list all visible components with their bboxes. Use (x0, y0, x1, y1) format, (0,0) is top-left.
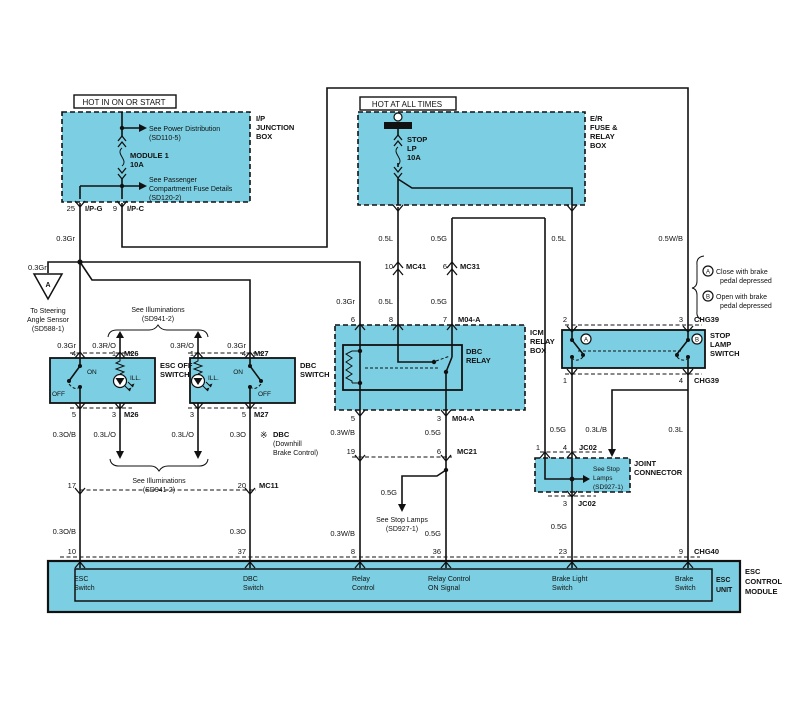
connector-name: CHG39 (694, 315, 719, 324)
module-signal-label: Switch (675, 585, 696, 592)
connector-name: CHG39 (694, 376, 719, 385)
fuse-name: STOP (407, 135, 427, 144)
connector-name: M27 (254, 410, 269, 419)
reference-label: (SD588-1) (32, 326, 64, 333)
unit-name: ESC (716, 577, 730, 584)
reference-label: See Passenger (149, 177, 198, 184)
connector-name: CHG40 (694, 547, 719, 556)
connector-name: M26 (124, 410, 139, 419)
wire-label: 0.5G (425, 428, 441, 437)
module-signal-label: Switch (243, 585, 264, 592)
reference-label: See Stop (593, 466, 620, 473)
pin-number: 5 (351, 414, 355, 423)
module-signal-label: Brake (675, 576, 693, 583)
pin-number: 10 (68, 547, 76, 556)
wire-label: 0.3W/B (330, 529, 355, 538)
pin-number: 7 (443, 315, 447, 324)
reference-label: (SD110-5) (149, 135, 181, 142)
pin-number: 19 (347, 447, 355, 456)
wire-label: 0.5G (551, 522, 567, 531)
connector-name: I/P-C (127, 204, 145, 213)
reference-label: (SD927-1) (593, 484, 623, 491)
power-tag-label: HOT AT ALL TIMES (372, 100, 442, 109)
module-signal-label: Control (352, 585, 375, 592)
component-name: SWITCH (160, 370, 190, 379)
component-name: LAMP (710, 340, 731, 349)
wire-label: 0.5G (431, 297, 447, 306)
wire-label: 0.3Gr (56, 234, 75, 243)
switch-position-label: OFF (52, 391, 65, 398)
arrow-up-icon (194, 331, 202, 338)
wire-label: 0.3L/O (171, 430, 194, 439)
wire (80, 262, 360, 325)
wiring-diagram: HOT IN ON OR START HOT AT ALL TIMES I/P … (0, 0, 810, 701)
pin-number: 37 (238, 547, 246, 556)
reference-label: (SD941-2) (142, 316, 174, 323)
module-signal-label: Brake Light (552, 576, 587, 583)
wiring-diagram-page: HOT IN ON OR START HOT AT ALL TIMES I/P … (0, 0, 810, 701)
module-signal-label: Switch (552, 585, 573, 592)
wire-label: 0.5L (378, 234, 393, 243)
module-name: MODULE (745, 587, 778, 596)
connector-name: M04-A (458, 315, 481, 324)
lamp-label: ILL. (208, 375, 219, 382)
pin-number: 3 (563, 499, 567, 508)
pin-number: 4 (563, 443, 567, 452)
lamp-label: ILL. (130, 375, 141, 382)
reference-label: (SD927-1) (386, 526, 418, 533)
box-name: FUSE & (590, 123, 618, 132)
wire (402, 470, 446, 504)
wire-label: 0.3Gr (28, 263, 47, 272)
fuse-rating: 10A (130, 160, 144, 169)
connector-name: MC31 (460, 262, 480, 271)
reference-label: Angle Sensor (27, 317, 70, 324)
pin-number: 2 (563, 315, 567, 324)
switch-position-label: ON (233, 369, 243, 376)
pin-number: 17 (68, 481, 76, 490)
connector-name: M04-A (452, 414, 475, 423)
connector-name: MC41 (406, 262, 426, 271)
wire-label: 0.3O (230, 527, 246, 536)
pin-number: 1 (563, 376, 567, 385)
switch-position-label: OFF (258, 391, 271, 398)
module-signal-label: ESC (74, 576, 88, 583)
box-name: BOX (530, 346, 546, 355)
pin-number: 8 (351, 547, 355, 556)
connector-name: MC21 (457, 447, 477, 456)
fusible-link-terminal-icon (394, 113, 402, 121)
connector-name: JC02 (579, 443, 597, 452)
component-name: STOP (710, 331, 730, 340)
unit-name: UNIT (716, 587, 733, 594)
note-label: Close with brake (716, 269, 768, 276)
box-name: JUNCTION (256, 123, 294, 132)
pin-number: 3 (112, 410, 116, 419)
pin-number: 6 (437, 447, 441, 456)
pin-number: 25 (67, 204, 75, 213)
fuse-name: MODULE 1 (130, 151, 169, 160)
brace-brake-note (692, 256, 704, 320)
fuse-rating: 10A (407, 153, 421, 162)
box-name: BOX (590, 141, 606, 150)
wire-label: 0.5G (550, 425, 566, 434)
brace-bottom (110, 459, 208, 471)
box-name: BOX (256, 132, 272, 141)
connector-name: M26 (124, 349, 139, 358)
reference-label: See Illuminations (132, 478, 186, 485)
wire-label: 0.3L (668, 425, 683, 434)
wire-label: 0.5G (381, 488, 397, 497)
connector-name: I/P-G (85, 204, 103, 213)
module-signal-label: Switch (74, 585, 95, 592)
module-signal-label: Relay (352, 576, 370, 583)
reference-label: See Stop Lamps (376, 517, 428, 524)
pin-number: 1 (536, 443, 540, 452)
module-name: ESC (745, 567, 761, 576)
arrow-down-icon (608, 449, 616, 457)
wire-label: 0.5G (431, 234, 447, 243)
component-name: ESC OFF (160, 361, 193, 370)
note-label: DBC (273, 430, 290, 439)
box-name: I/P (256, 114, 265, 123)
reference-mark-icon: ※ (260, 430, 268, 440)
arrow-down-icon (194, 451, 202, 459)
arrow-down-icon (398, 504, 406, 512)
pin-number: 23 (559, 547, 567, 556)
pin-number: 9 (113, 204, 117, 213)
pin-number: 5 (242, 410, 246, 419)
wire-label: 0.3O/B (53, 430, 76, 439)
reference-label: Compartment Fuse Details (149, 186, 233, 193)
box-name: CONNECTOR (634, 468, 683, 477)
wire-label: 0.3L/B (585, 425, 607, 434)
contact-b-letter: B (695, 338, 699, 344)
pin-number: 8 (389, 315, 393, 324)
wire-label: 0.5W/B (658, 234, 683, 243)
note-label: pedal depressed (720, 303, 772, 310)
note-label: Open with brake (716, 294, 767, 301)
switch-position-label: ON (87, 369, 97, 376)
wire-label: 0.3Gr (336, 297, 355, 306)
note-b-letter: B (706, 295, 710, 301)
component-name: DBC (466, 347, 483, 356)
box-name: E/R (590, 114, 603, 123)
component-name: DBC (300, 361, 317, 370)
wire-label: 0.5L (378, 297, 393, 306)
wire-label: 0.3O (230, 430, 246, 439)
wire (80, 403, 250, 568)
module-signal-label: DBC (243, 576, 258, 583)
reference-label: (SD120-2) (149, 195, 181, 202)
wire-label: 0.5G (425, 529, 441, 538)
pin-number: 5 (72, 410, 76, 419)
wire-label: 0.5L (551, 234, 566, 243)
box-name: JOINT (634, 459, 657, 468)
component-name: SWITCH (710, 349, 740, 358)
pin-number: 4 (679, 376, 683, 385)
box-name: ICM (530, 328, 544, 337)
wire-label: 0.3O/B (53, 527, 76, 536)
note-label: pedal depressed (720, 278, 772, 285)
connector-name: M27 (254, 349, 269, 358)
arrow-up-icon (116, 331, 124, 338)
component-name: RELAY (466, 356, 491, 365)
pin-number: 10 (385, 262, 393, 271)
arrow-down-icon (116, 451, 124, 459)
box-name: RELAY (530, 337, 555, 346)
note-label: Brake Control) (273, 450, 318, 457)
pin-number: 6 (443, 262, 447, 271)
component-name: SWITCH (300, 370, 330, 379)
module-signal-label: Relay Control (428, 576, 471, 583)
reference-label: (SD941-2) (143, 487, 175, 494)
module-signal-label: ON Signal (428, 585, 460, 592)
wire-label: 0.3W/B (330, 428, 355, 437)
triangle-letter: A (45, 282, 50, 289)
fuse-name: LP (407, 144, 417, 153)
pin-number: 1 (190, 349, 194, 358)
pin-number: 3 (190, 410, 194, 419)
reference-label: See Illuminations (131, 307, 185, 314)
box-name: RELAY (590, 132, 615, 141)
module-name: CONTROL (745, 577, 782, 586)
fusible-link-icon (384, 122, 412, 129)
brace-top (108, 325, 208, 337)
contact-a-letter: A (584, 338, 588, 344)
power-tag-label: HOT IN ON OR START (82, 98, 165, 107)
reference-label: See Power Distribution (149, 126, 220, 133)
wire (48, 262, 80, 273)
reference-label: To Steering (30, 308, 66, 315)
pin-number: 4 (72, 349, 76, 358)
pin-number: 3 (437, 414, 441, 423)
reference-label: Lamps (593, 475, 613, 482)
wire-label: 0.3L/O (93, 430, 116, 439)
note-label: (Downhill (273, 441, 302, 448)
pin-number: 3 (679, 315, 683, 324)
pin-number: 9 (679, 547, 683, 556)
connector-name: MC11 (259, 481, 279, 490)
pin-number: 36 (433, 547, 441, 556)
pin-number: 6 (351, 315, 355, 324)
pin-number: 1 (112, 349, 116, 358)
pin-number: 20 (238, 481, 246, 490)
component-boxes (48, 95, 740, 612)
pin-number: 4 (242, 349, 246, 358)
connector-name: JC02 (578, 499, 596, 508)
note-a-letter: A (706, 270, 710, 276)
dbc-switch-box (190, 358, 295, 403)
